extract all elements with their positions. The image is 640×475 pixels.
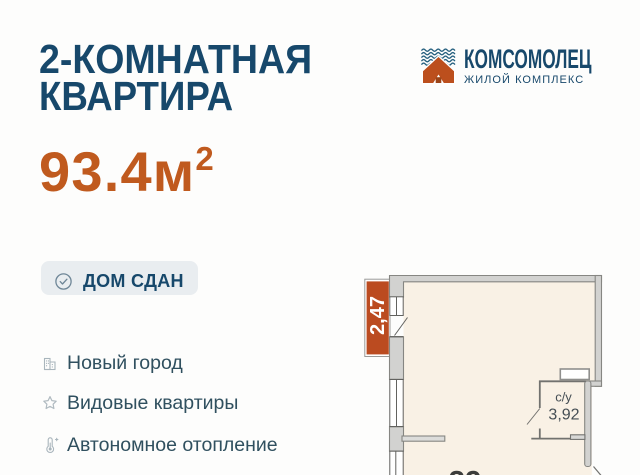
svg-text:2,47: 2,47 bbox=[367, 296, 389, 335]
svg-text:с/у: с/у bbox=[555, 390, 572, 405]
svg-text:29: 29 bbox=[448, 466, 481, 475]
svg-text:3,92: 3,92 bbox=[548, 407, 579, 424]
